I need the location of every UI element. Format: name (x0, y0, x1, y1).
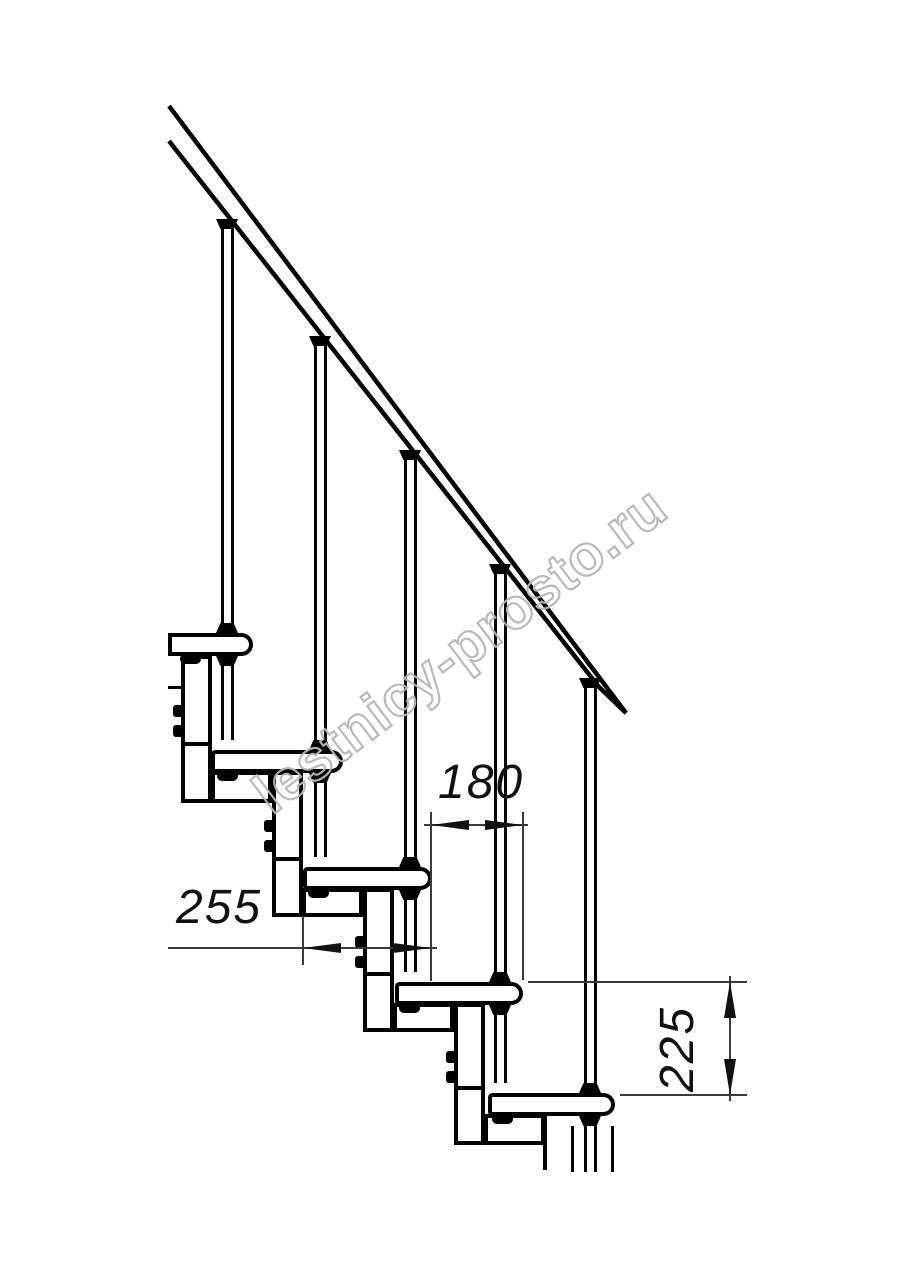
baluster-2 (314, 346, 327, 741)
support-module-2 (272, 771, 303, 917)
dim-180-extension-right (522, 812, 524, 980)
tread-2 (211, 750, 343, 773)
module-1-bolt-a (173, 705, 182, 717)
module-4-bolt-b (446, 1071, 455, 1083)
strut-3 (404, 900, 417, 972)
support-module-4 (454, 1003, 485, 1145)
dim-225-arrow-down (724, 1059, 736, 1095)
tread-3 (303, 867, 432, 890)
module-2-joint-line (272, 857, 303, 861)
module-1-bolt-b (173, 725, 182, 737)
dim-180-extension-left (430, 812, 432, 981)
dim-255-arrow-right (393, 943, 431, 953)
tread-4 (395, 982, 523, 1005)
dim-255-arrow-left (303, 943, 341, 953)
dim-180-arrow-right (485, 820, 523, 830)
support-module-3 (363, 888, 394, 1032)
dim-225-label: 225 (652, 989, 702, 1109)
dim-180-label: 180 (438, 755, 524, 810)
module-3-joint-line (363, 972, 394, 976)
strut-4 (494, 1015, 507, 1083)
support-module-5-left-edge (543, 1116, 547, 1170)
baluster-1 (221, 229, 234, 624)
module-2-bolt-b (264, 840, 273, 852)
tread-5 (488, 1093, 615, 1116)
handrail (169, 106, 626, 713)
tread-bolt-1 (180, 656, 201, 664)
dim-225-extension-top (528, 981, 747, 983)
strut-5 (584, 1126, 597, 1172)
tread-bolt-4 (399, 1005, 420, 1013)
dim-255-extension-left (302, 916, 304, 965)
tread-1 (168, 633, 253, 656)
module-4-bolt-a (446, 1051, 455, 1063)
baluster-3 (404, 460, 417, 858)
tread-bolt-3 (308, 890, 329, 898)
strut-2 (314, 783, 327, 857)
dim-225-arrow-up (724, 982, 736, 1018)
strut-5-outer-line-left (571, 1126, 574, 1172)
support-module-1 (181, 655, 212, 803)
dim-255-label: 255 (176, 880, 262, 935)
left-edge-stub (168, 686, 181, 689)
module-3-bolt-b (355, 956, 364, 968)
baluster-5 (584, 688, 597, 1084)
tread-bolt-2 (217, 773, 238, 781)
dim-180-arrow-left (431, 820, 469, 830)
strut-5-outer-line-right (611, 1126, 614, 1172)
tread-bolt-5 (492, 1116, 513, 1124)
module-1-joint-line (181, 742, 212, 746)
module-2-bolt-a (264, 820, 273, 832)
module-4-joint-line (454, 1086, 485, 1090)
staircase-technical-drawing: 180 255 225 lestnicy-prosto.ru (0, 0, 914, 1280)
strut-1 (221, 666, 234, 740)
